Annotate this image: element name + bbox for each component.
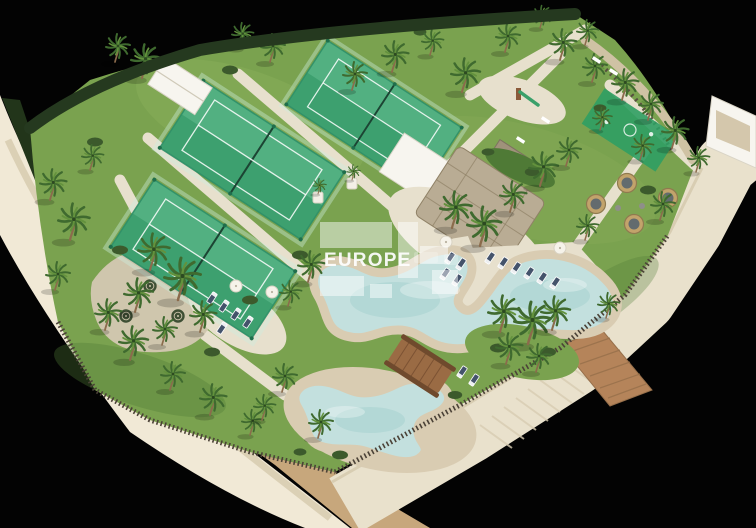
watermark-text: EUROPE <box>324 250 411 271</box>
resort-aerial-scene: EUROPE <box>0 0 756 528</box>
render-image: EUROPE <box>0 0 756 528</box>
